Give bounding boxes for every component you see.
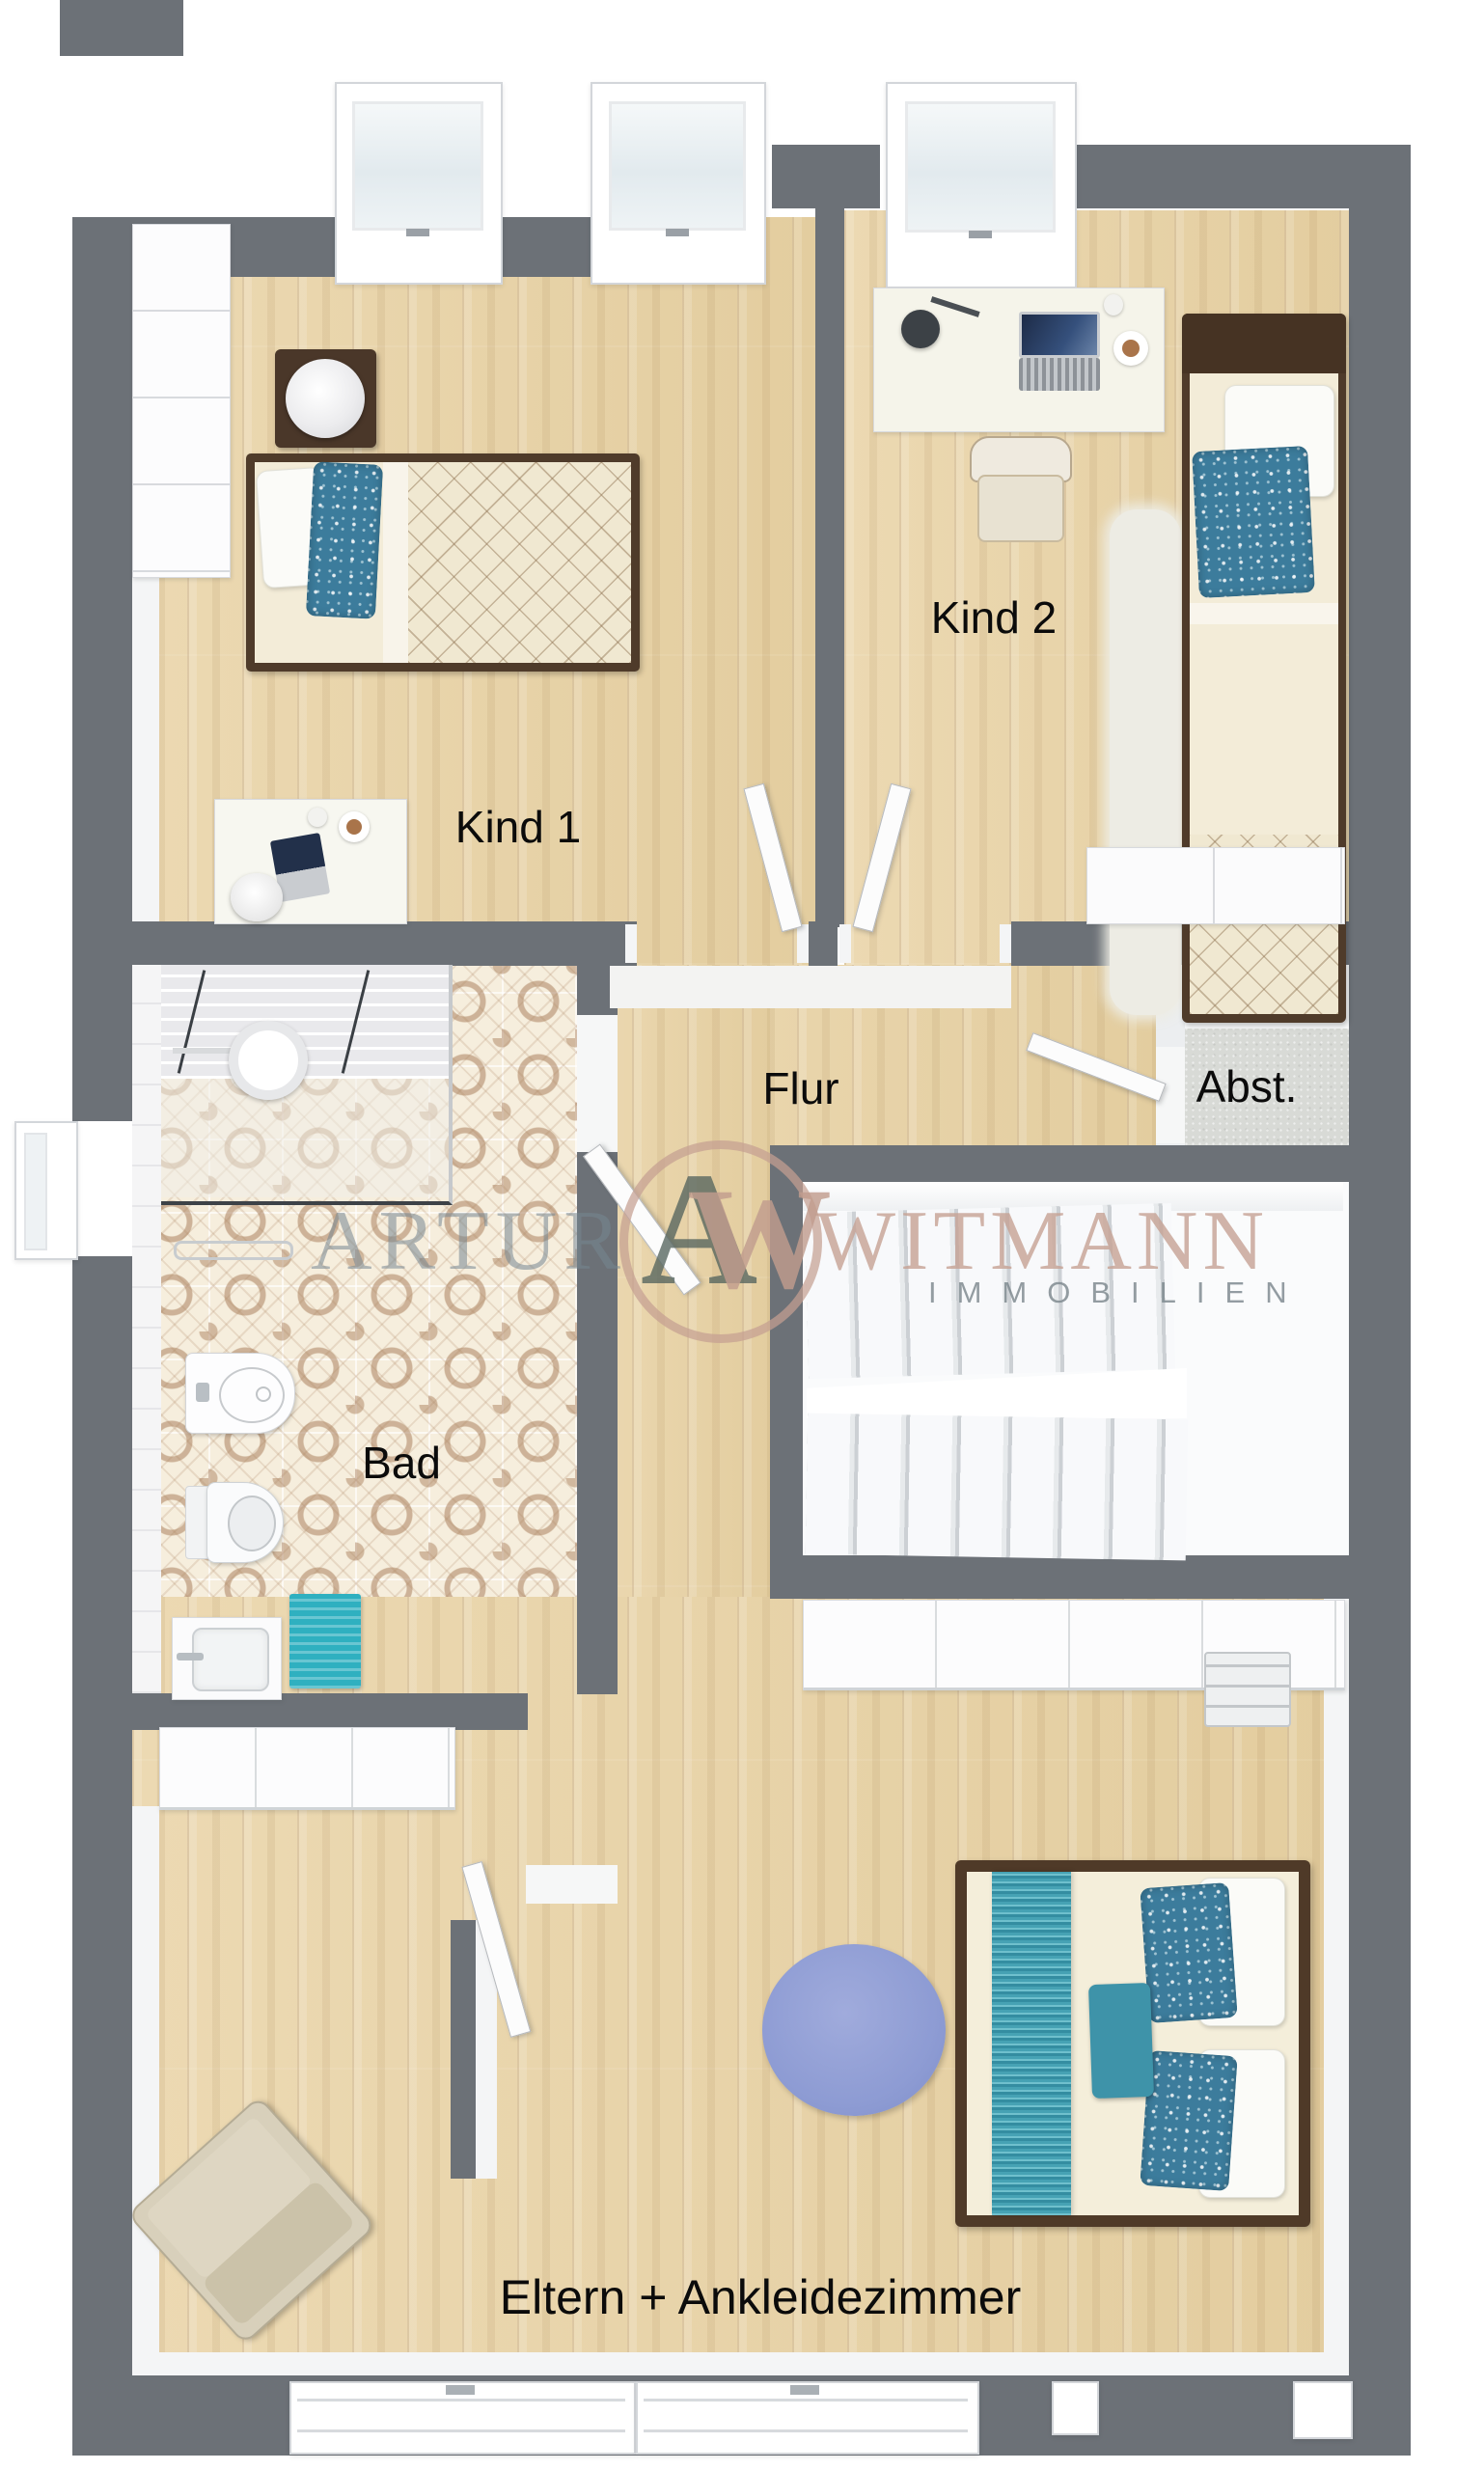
dressing-divider-wall [451, 1920, 476, 2179]
door-jamb [1000, 924, 1011, 963]
kind1-desk [214, 799, 407, 924]
room-label-abst: Abst. [1196, 1060, 1298, 1112]
top-wall-t-block [772, 145, 880, 208]
stairs-top-wall [770, 1145, 1349, 1182]
floor-plan-canvas: ARTUR A W WITMANN IMMOBILIEN Kind 1 Kind… [0, 0, 1484, 2470]
kind2-chair [970, 436, 1068, 546]
room-label-flur: Flur [762, 1062, 838, 1114]
stairs-lower-flight [806, 1413, 1188, 1561]
bottom-wall-jamb-2 [1293, 2381, 1353, 2439]
door-jamb [797, 924, 809, 963]
coffee-cup-icon [339, 811, 370, 842]
window-sill-line [644, 2429, 968, 2432]
coffee [346, 819, 362, 835]
window-glass [352, 101, 483, 231]
room-label-bad: Bad [362, 1437, 441, 1489]
kind1-dormer-window-2 [591, 82, 766, 285]
bidet [185, 1353, 295, 1434]
toilet-seat [228, 1496, 276, 1551]
pen-cup-icon [1104, 294, 1123, 316]
room-label-kind1: Kind 1 [455, 801, 581, 853]
bed-headboard [1182, 314, 1346, 373]
right-exterior-wall [1349, 145, 1411, 2456]
wire-baskets [1204, 1652, 1291, 1727]
watermark-monogram-circle [619, 1140, 822, 1343]
towel-bar [174, 1241, 293, 1260]
eltern-closet-left [159, 1727, 455, 1810]
bidet-drain [256, 1386, 271, 1402]
bed-pillow-floral-1 [1140, 1882, 1238, 2023]
bed-sheet-band [383, 462, 408, 663]
bath-top-wall [132, 921, 618, 966]
chair-seat [977, 475, 1064, 542]
pen-cup-icon [308, 808, 327, 827]
eltern-window-1 [289, 2381, 636, 2455]
eltern-bed [955, 1860, 1310, 2227]
top-wall-right [1073, 145, 1349, 208]
bed-pillow-floral [1192, 446, 1315, 598]
window-glass [905, 101, 1056, 233]
kind2-dormer-window [886, 82, 1077, 288]
egg-vase [231, 873, 283, 921]
window-sill-line [297, 2399, 625, 2401]
shower-arm [173, 1048, 236, 1054]
bath-side-window [14, 1121, 78, 1260]
kind2-rug [1110, 509, 1181, 1015]
bottom-wall-inner-face [132, 2352, 1349, 2375]
kind1-dormer-window-1 [335, 82, 503, 285]
bidet-faucet [196, 1383, 209, 1402]
eltern-window-2 [636, 2381, 979, 2455]
sink-faucet-icon [177, 1653, 204, 1660]
left-exterior-wall-upper [72, 217, 132, 1121]
bed-sheet-band [1190, 603, 1338, 624]
bottom-wall-jamb-1 [1052, 2381, 1099, 2435]
window-sill-line [297, 2429, 625, 2432]
window-handle-icon [790, 2385, 819, 2395]
bath-door-threshold [577, 1015, 618, 1152]
laptop-icon [1019, 312, 1100, 358]
bath-left-face [132, 965, 161, 1693]
bidet-bowl [219, 1367, 285, 1423]
window-handle-icon [969, 231, 992, 238]
kind2-desk [873, 288, 1165, 432]
window-handle-icon [446, 2385, 475, 2395]
sink-basin [192, 1628, 269, 1691]
window-glass [24, 1133, 47, 1250]
flur-door-landing [610, 966, 1011, 1008]
bed-pillow-floral [306, 461, 383, 619]
kind1-wardrobe [132, 224, 231, 578]
stairs-bottom-wall [770, 1555, 1349, 1599]
window-handle-icon [406, 229, 429, 236]
eltern-rug-round [762, 1944, 946, 2116]
bath-right-wall-lower [577, 1152, 618, 1694]
room-label-eltern: Eltern + Ankleidezimmer [500, 2269, 1022, 2325]
laptop-keyboard [1019, 358, 1100, 391]
coffee [1122, 340, 1140, 357]
eltern-door-threshold [526, 1865, 618, 1904]
desk-lamp-icon [901, 310, 940, 348]
chimney-block [60, 0, 183, 56]
bath-vanity [172, 1617, 282, 1700]
shower-enclosure [161, 965, 453, 1205]
kind1-bed [246, 453, 640, 672]
corridor-wall-stem [809, 921, 838, 966]
kind2-sideboard [1086, 847, 1345, 924]
window-sill-line [644, 2399, 968, 2401]
bed-pillow-teal [1088, 1983, 1154, 2099]
toilet [185, 1480, 282, 1563]
window-glass [609, 101, 746, 231]
kind-divider-wall [815, 208, 844, 927]
bed-runner [992, 1872, 1071, 2215]
shower-tray [161, 1079, 449, 1197]
room-label-kind2: Kind 2 [931, 591, 1057, 644]
kind1-left-face [132, 576, 159, 921]
coffee-cup-icon [1113, 331, 1148, 366]
bed-pillow-floral-2 [1140, 2050, 1238, 2191]
desk-lamp-arm [930, 296, 979, 317]
eltern-left-face [132, 1806, 159, 2352]
bath-mat [289, 1594, 361, 1688]
top-wall-pier [499, 217, 591, 277]
window-handle-icon [666, 229, 689, 236]
bed-blanket [408, 462, 631, 663]
left-exterior-wall-lower [72, 1256, 132, 2456]
shower-head-icon [229, 1021, 308, 1100]
door-jamb [625, 924, 637, 963]
door-jamb [839, 924, 851, 963]
stairs-upper-flight [805, 1203, 1175, 1379]
kind1-lamp [286, 359, 365, 438]
eltern-right-face [1324, 1599, 1349, 2352]
